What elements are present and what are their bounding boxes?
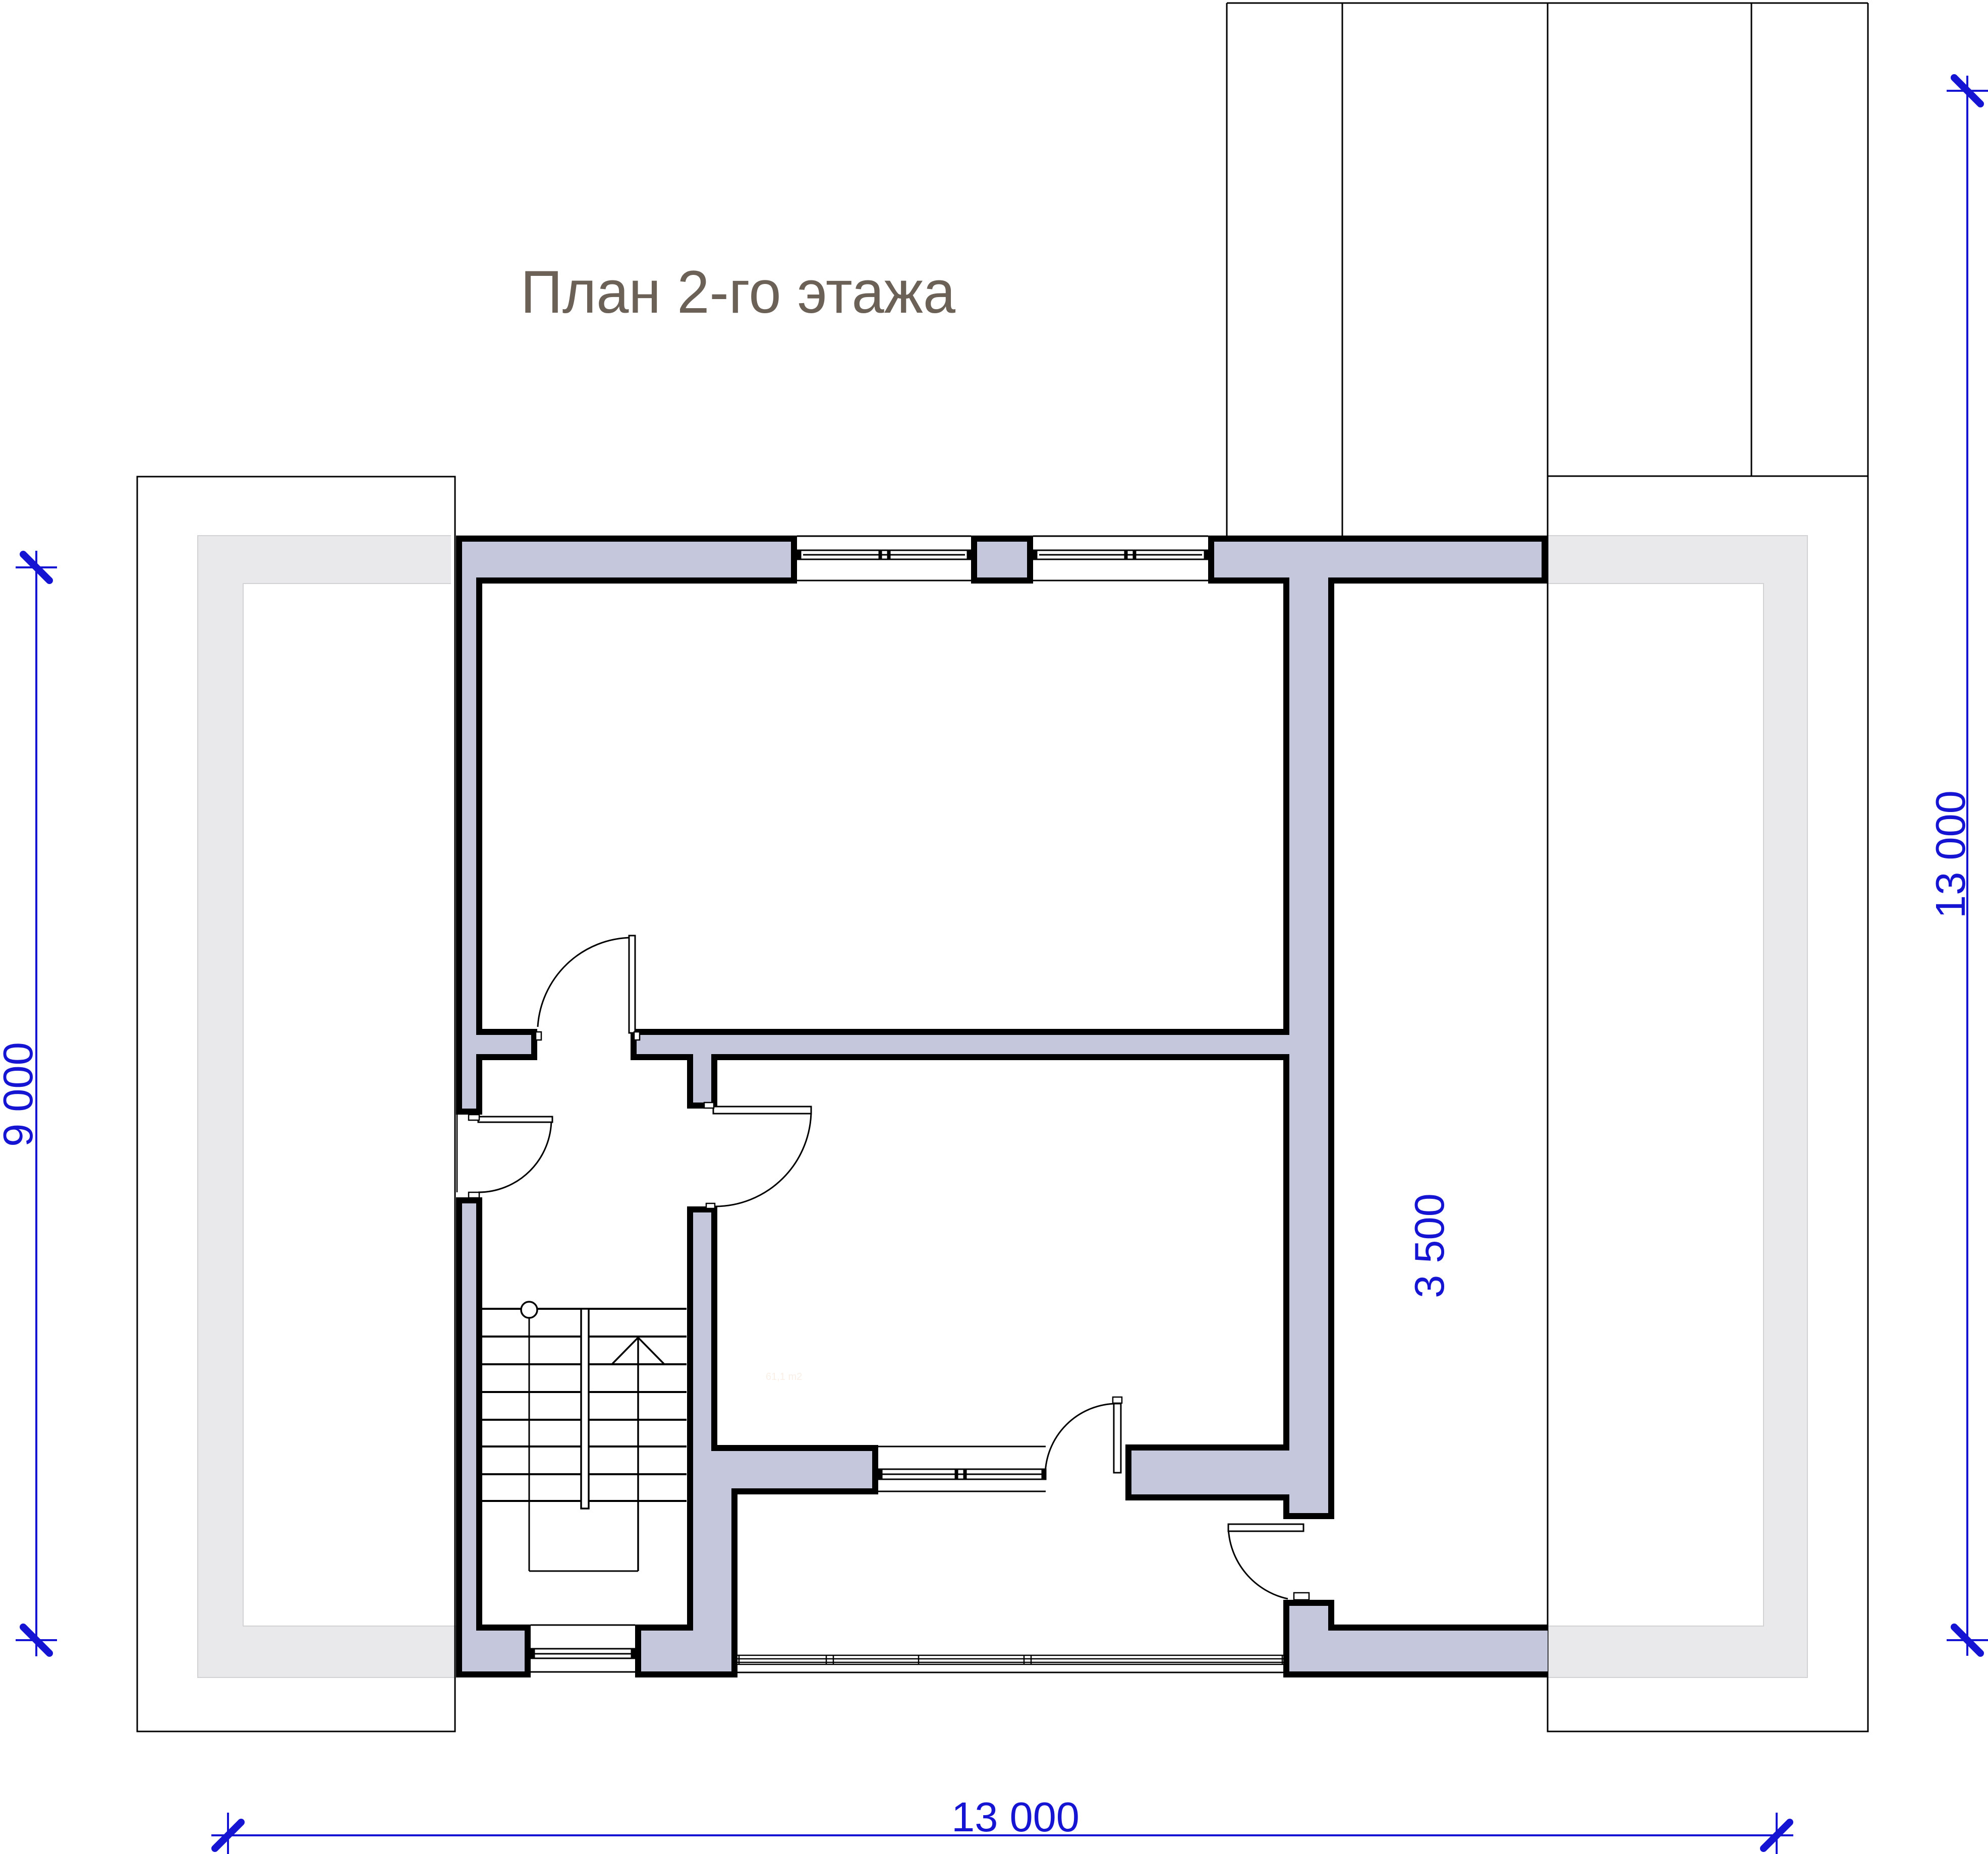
svg-text:План 2-го этажа: План 2-го этажа	[521, 258, 955, 326]
svg-text:13 000: 13 000	[951, 1793, 1080, 1840]
svg-text:61,1 m2: 61,1 m2	[766, 1371, 802, 1382]
svg-text:3 500: 3 500	[1406, 1193, 1453, 1298]
svg-text:13 000: 13 000	[1927, 790, 1974, 918]
svg-text:9 000: 9 000	[0, 1042, 41, 1147]
